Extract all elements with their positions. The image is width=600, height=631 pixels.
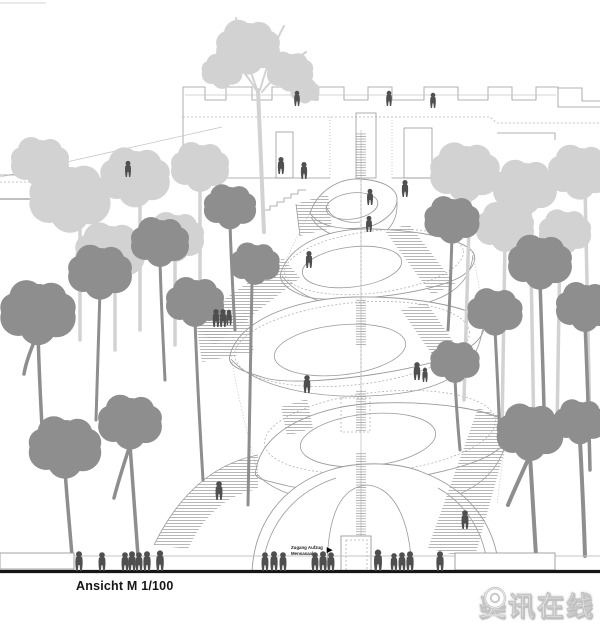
arrow-right-icon: ► bbox=[325, 546, 335, 556]
elevation-artwork bbox=[0, 0, 600, 631]
drawing-caption: Ansicht M 1/100 bbox=[76, 579, 173, 593]
magnifier-icon bbox=[479, 585, 513, 621]
watermark-logo: 美讯在线 bbox=[479, 585, 595, 624]
door-annotation-line1: Zugang Aufzug bbox=[291, 545, 323, 551]
door-annotation: Zugang Aufzug Mensasaal ► bbox=[291, 545, 335, 556]
door-annotation-text: Zugang Aufzug Mensasaal bbox=[291, 545, 323, 556]
elevation-drawing-canvas: Zugang Aufzug Mensasaal ► Ansicht M 1/10… bbox=[0, 0, 600, 631]
door-annotation-line2: Mensasaal bbox=[291, 551, 323, 557]
